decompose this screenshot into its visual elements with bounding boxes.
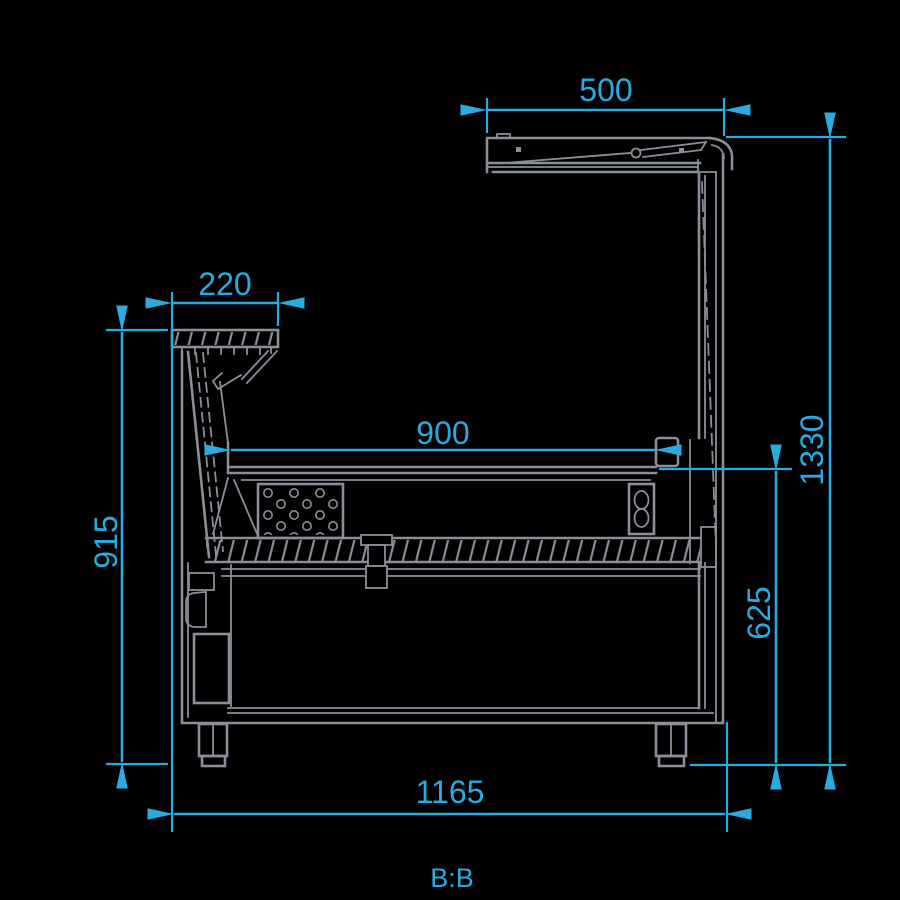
dim-label-500: 500: [579, 72, 632, 108]
front-shelf: [172, 330, 278, 354]
base-component-large: [194, 634, 229, 703]
rear-riser: [656, 438, 678, 466]
dim-overall-depth: 1165: [174, 722, 727, 832]
dim-front-height: 915: [88, 330, 168, 764]
dim-display-deck-depth: 900: [231, 415, 655, 451]
back-column: [690, 155, 723, 723]
canopy-screw-right: [679, 148, 684, 153]
column-junction-box: [701, 527, 716, 567]
fan-unit: [629, 484, 654, 534]
section-label: B:B: [430, 863, 474, 893]
foot-left: [199, 724, 227, 766]
dim-deck-height: 625: [659, 469, 846, 765]
canopy: [487, 134, 732, 172]
shelf-bracket: [213, 351, 277, 389]
dim-overall-height: 1330: [726, 137, 846, 763]
dim-label-900: 900: [416, 415, 469, 451]
fan-symbol: [635, 491, 649, 527]
dim-label-220: 220: [198, 266, 251, 302]
dim-label-1165: 1165: [416, 774, 485, 810]
canopy-screw-left: [516, 147, 521, 152]
evaporator-coil: [213, 478, 343, 538]
dim-label-625: 625: [741, 586, 777, 639]
drawing-canvas: 500 220 900 915 1330 625: [0, 0, 900, 900]
technical-drawing: 500 220 900 915 1330 625: [0, 0, 900, 900]
foot-right: [656, 724, 686, 766]
base-curved-duct: [186, 592, 206, 627]
dim-label-1330: 1330: [794, 414, 830, 485]
dim-label-915: 915: [88, 515, 124, 568]
base-component-small: [189, 573, 214, 590]
front-glass: [188, 352, 228, 557]
canopy-light-fixture: [505, 142, 706, 163]
dim-canopy-depth: 500: [487, 72, 724, 136]
dimensions: 500 220 900 915 1330 625: [88, 72, 846, 832]
well-insulation: [206, 538, 700, 576]
